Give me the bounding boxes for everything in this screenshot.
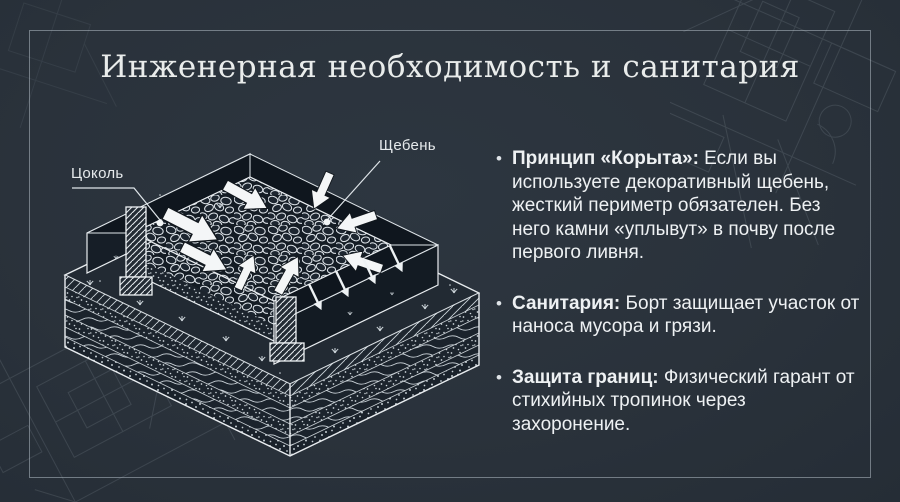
- label-gravel: Щебень: [379, 137, 436, 154]
- bullet-marker: •: [496, 147, 502, 171]
- bullet-lead: Защита границ:: [512, 367, 659, 388]
- bullet-item-sanitation: • Санитария: Борт защищает участок от на…: [496, 292, 860, 339]
- bullet-item-border-protection: • Защита границ: Физический гарант от ст…: [496, 366, 860, 437]
- label-plinth: Цоколь: [71, 165, 124, 182]
- plinth-leader-dot-icon: [157, 220, 164, 227]
- bullet-item-trough-principle: • Принцип «Корыта»: Если вы используете …: [496, 147, 860, 265]
- foundation-diagram: Цоколь Щебень: [30, 135, 480, 485]
- bullet-body: Санитария: Борт защищает участок от нано…: [512, 293, 859, 338]
- bullet-marker: •: [496, 292, 502, 316]
- bullet-marker: •: [496, 366, 502, 390]
- bullet-lead: Принцип «Корыта»:: [512, 148, 699, 169]
- bullet-list: • Принцип «Корыта»: Если вы используете …: [496, 147, 852, 436]
- bullet-body: Принцип «Корыта»: Если вы используете де…: [512, 148, 835, 263]
- slide-title: Инженерная необходимость и санитария: [0, 49, 900, 85]
- gravel-leader-dot-icon: [324, 219, 331, 226]
- slide: Инженерная необходимость и санитария: [0, 0, 900, 502]
- bullet-body: Защита границ: Физический гарант от стих…: [512, 367, 855, 435]
- foundation-diagram-canvas: [30, 135, 480, 485]
- bullet-lead: Санитария:: [512, 293, 620, 314]
